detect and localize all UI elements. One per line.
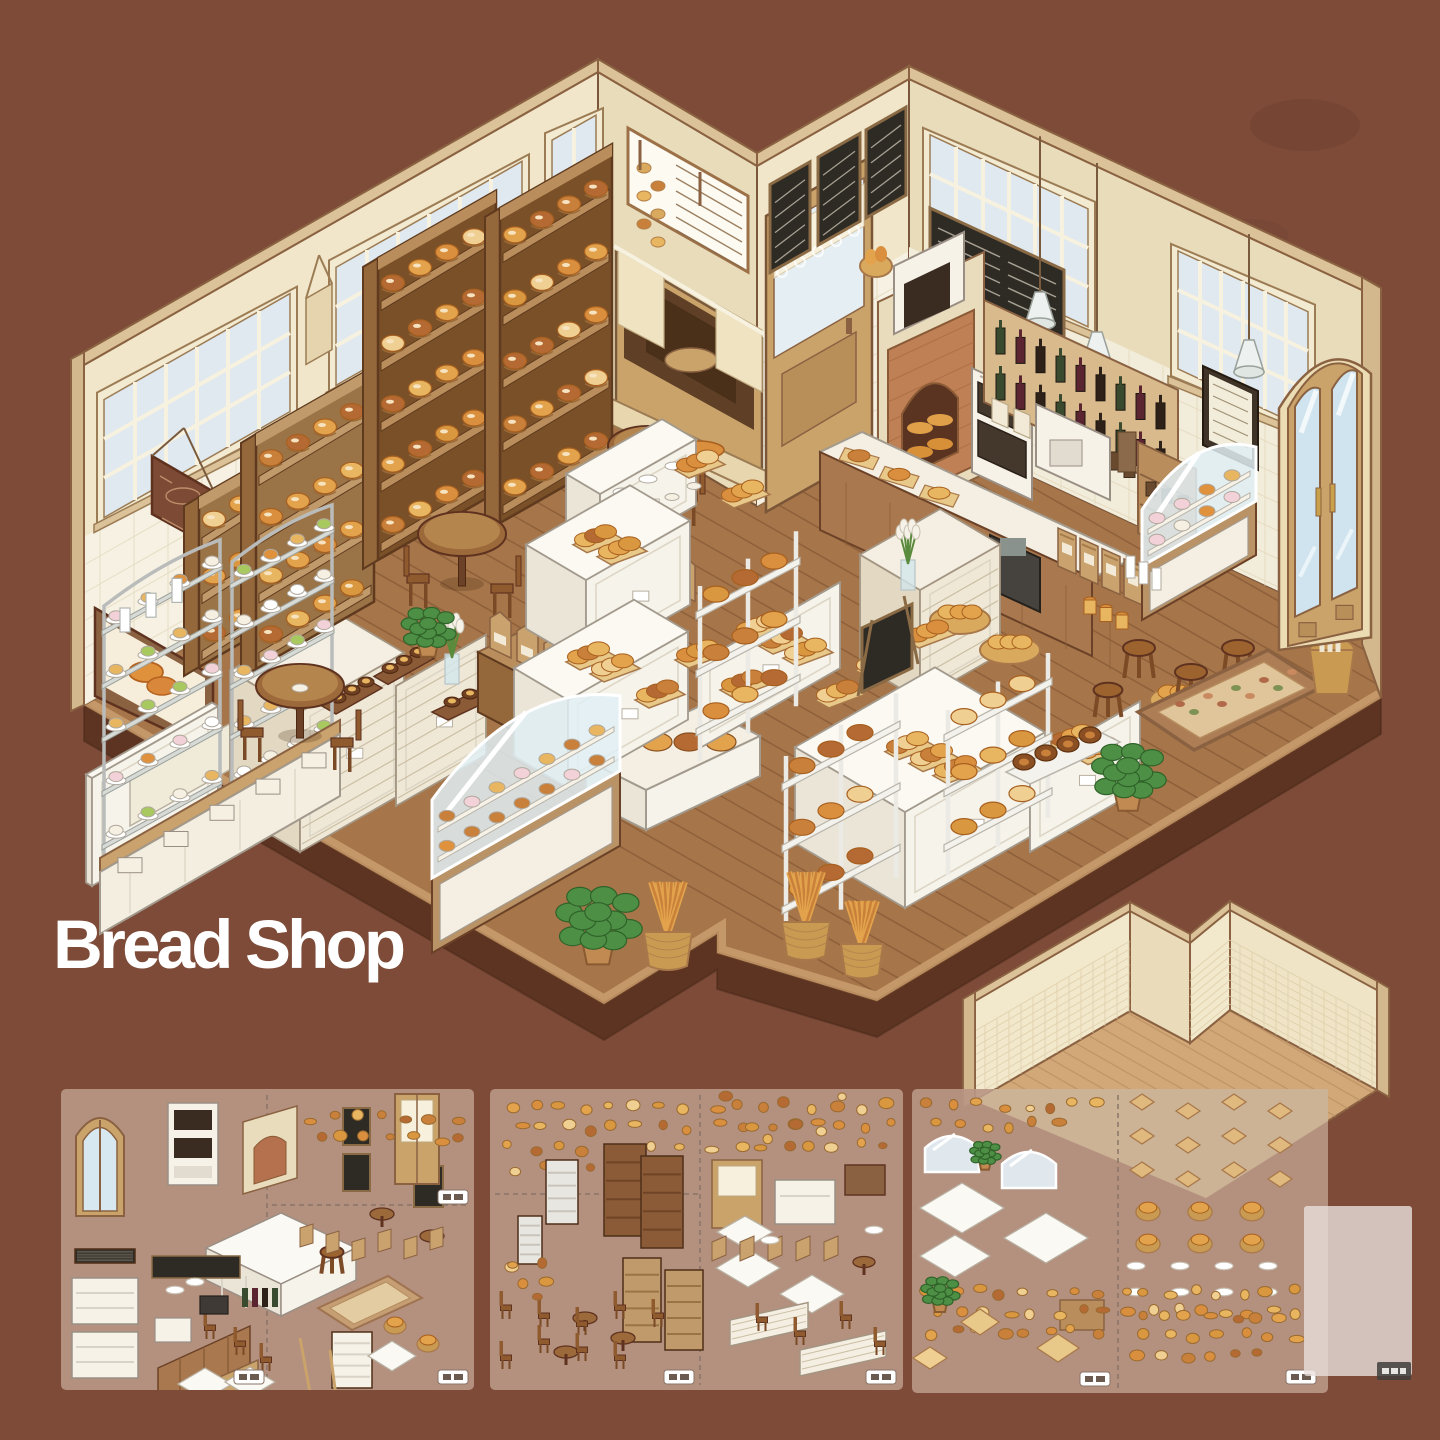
svg-text:Bread Shop: Bread Shop	[53, 906, 404, 983]
